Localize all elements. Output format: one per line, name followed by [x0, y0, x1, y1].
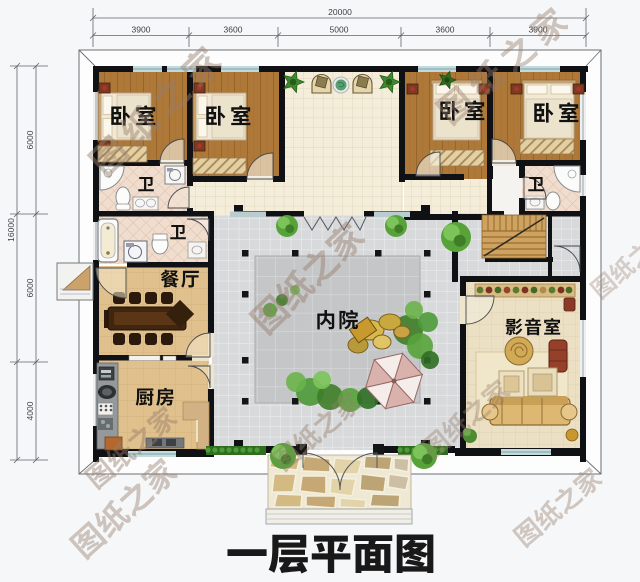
- svg-text:5000: 5000: [330, 25, 349, 35]
- svg-text:3600: 3600: [224, 25, 243, 35]
- svg-text:3600: 3600: [436, 25, 455, 35]
- svg-text:6000: 6000: [25, 130, 35, 149]
- svg-text:6000: 6000: [25, 278, 35, 297]
- svg-text:4000: 4000: [25, 401, 35, 420]
- svg-text:3900: 3900: [132, 25, 151, 35]
- svg-text:20000: 20000: [328, 7, 352, 17]
- svg-text:16000: 16000: [6, 218, 16, 242]
